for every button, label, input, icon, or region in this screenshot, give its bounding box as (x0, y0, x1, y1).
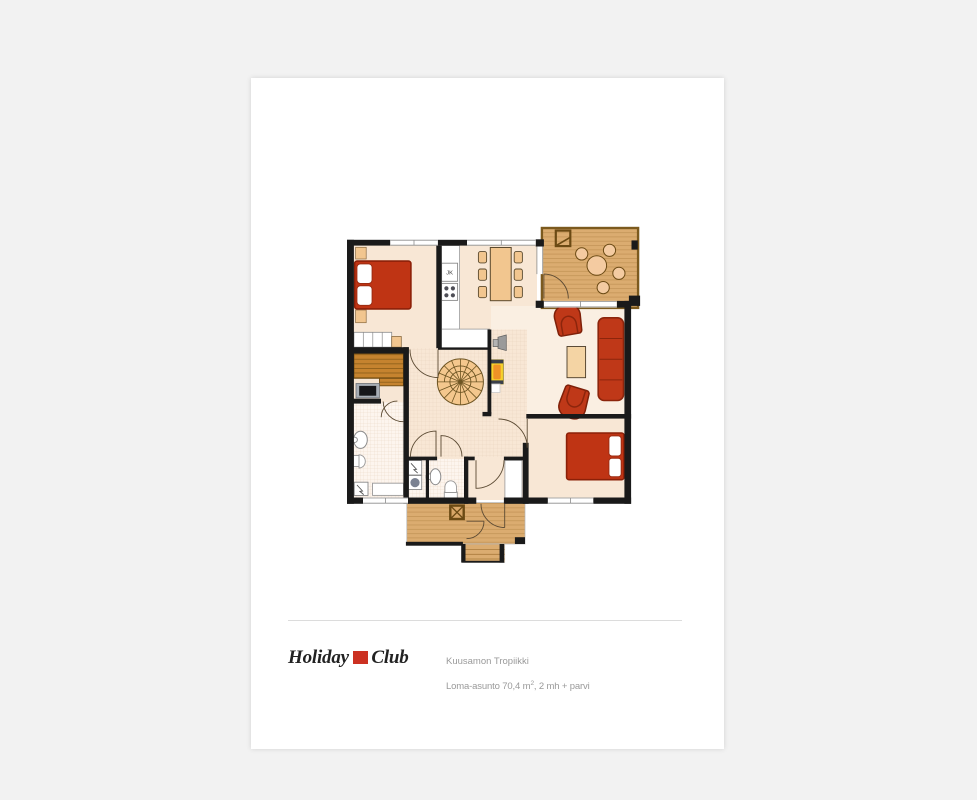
svg-text:JK: JK (446, 271, 453, 277)
